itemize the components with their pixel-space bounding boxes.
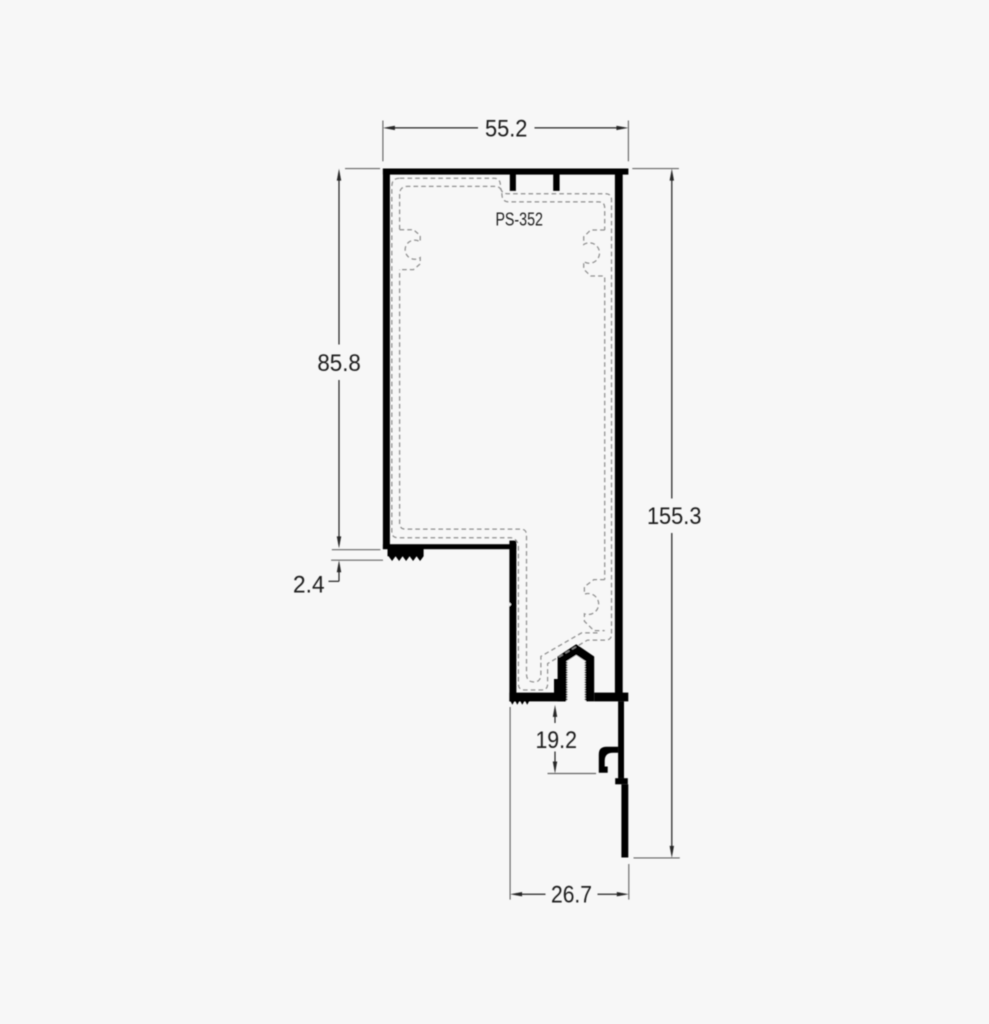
svg-text:155.3: 155.3 <box>647 503 702 530</box>
svg-text:2.4: 2.4 <box>293 572 325 599</box>
svg-text:55.2: 55.2 <box>485 115 528 142</box>
svg-text:PS-352: PS-352 <box>495 208 543 229</box>
svg-text:85.8: 85.8 <box>317 350 361 377</box>
svg-text:19.2: 19.2 <box>535 727 577 754</box>
svg-text:26.7: 26.7 <box>551 882 592 909</box>
